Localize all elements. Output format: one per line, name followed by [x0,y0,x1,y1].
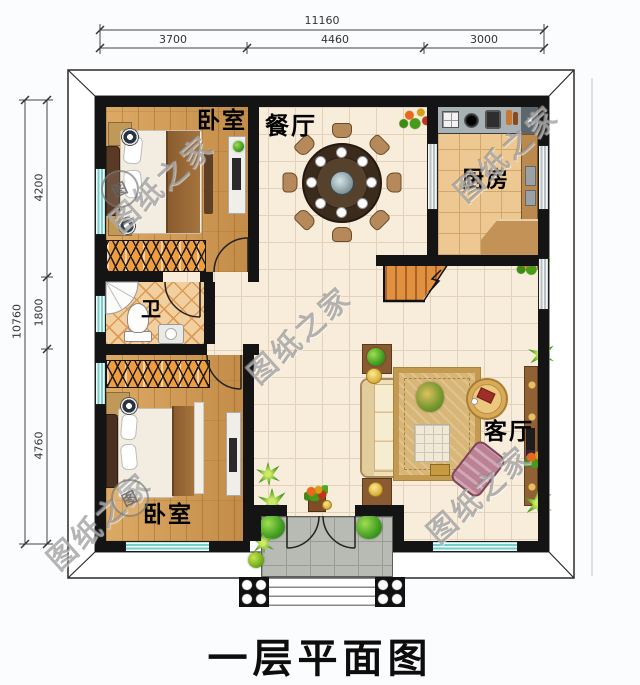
dim-top-seg1: 3700 [143,34,203,45]
watermark-stamp: 图 [111,479,149,517]
dim-top-total: 11160 [292,15,352,26]
entry-door-arc-left [287,516,319,548]
dim-left-seg2: 1800 [34,283,45,343]
dim-top-seg2: 4460 [305,34,365,45]
dim-left-seg1: 4200 [34,158,45,218]
label-bathroom: 卫 [138,299,166,319]
watermark-stamp: 图 [101,170,139,208]
stair-break-zigzag [429,270,441,292]
entry-door-arc-right [323,516,355,548]
dim-top-seg3: 3000 [454,34,514,45]
stair-break-line [423,264,448,302]
floor-plan-canvas: 卧室 餐厅 厨房 卫 卧室 客厅 图纸之家 图纸之家 图纸之家 图纸之家 图纸之… [0,0,640,685]
door-arc-bathroom [165,282,200,317]
label-dining: 餐厅 [255,114,327,138]
plan-title: 一层平面图 [0,626,640,684]
door-arc-bedroom1 [214,238,248,272]
dim-left-seg3: 4760 [34,416,45,476]
dim-left-total: 10760 [12,292,23,352]
